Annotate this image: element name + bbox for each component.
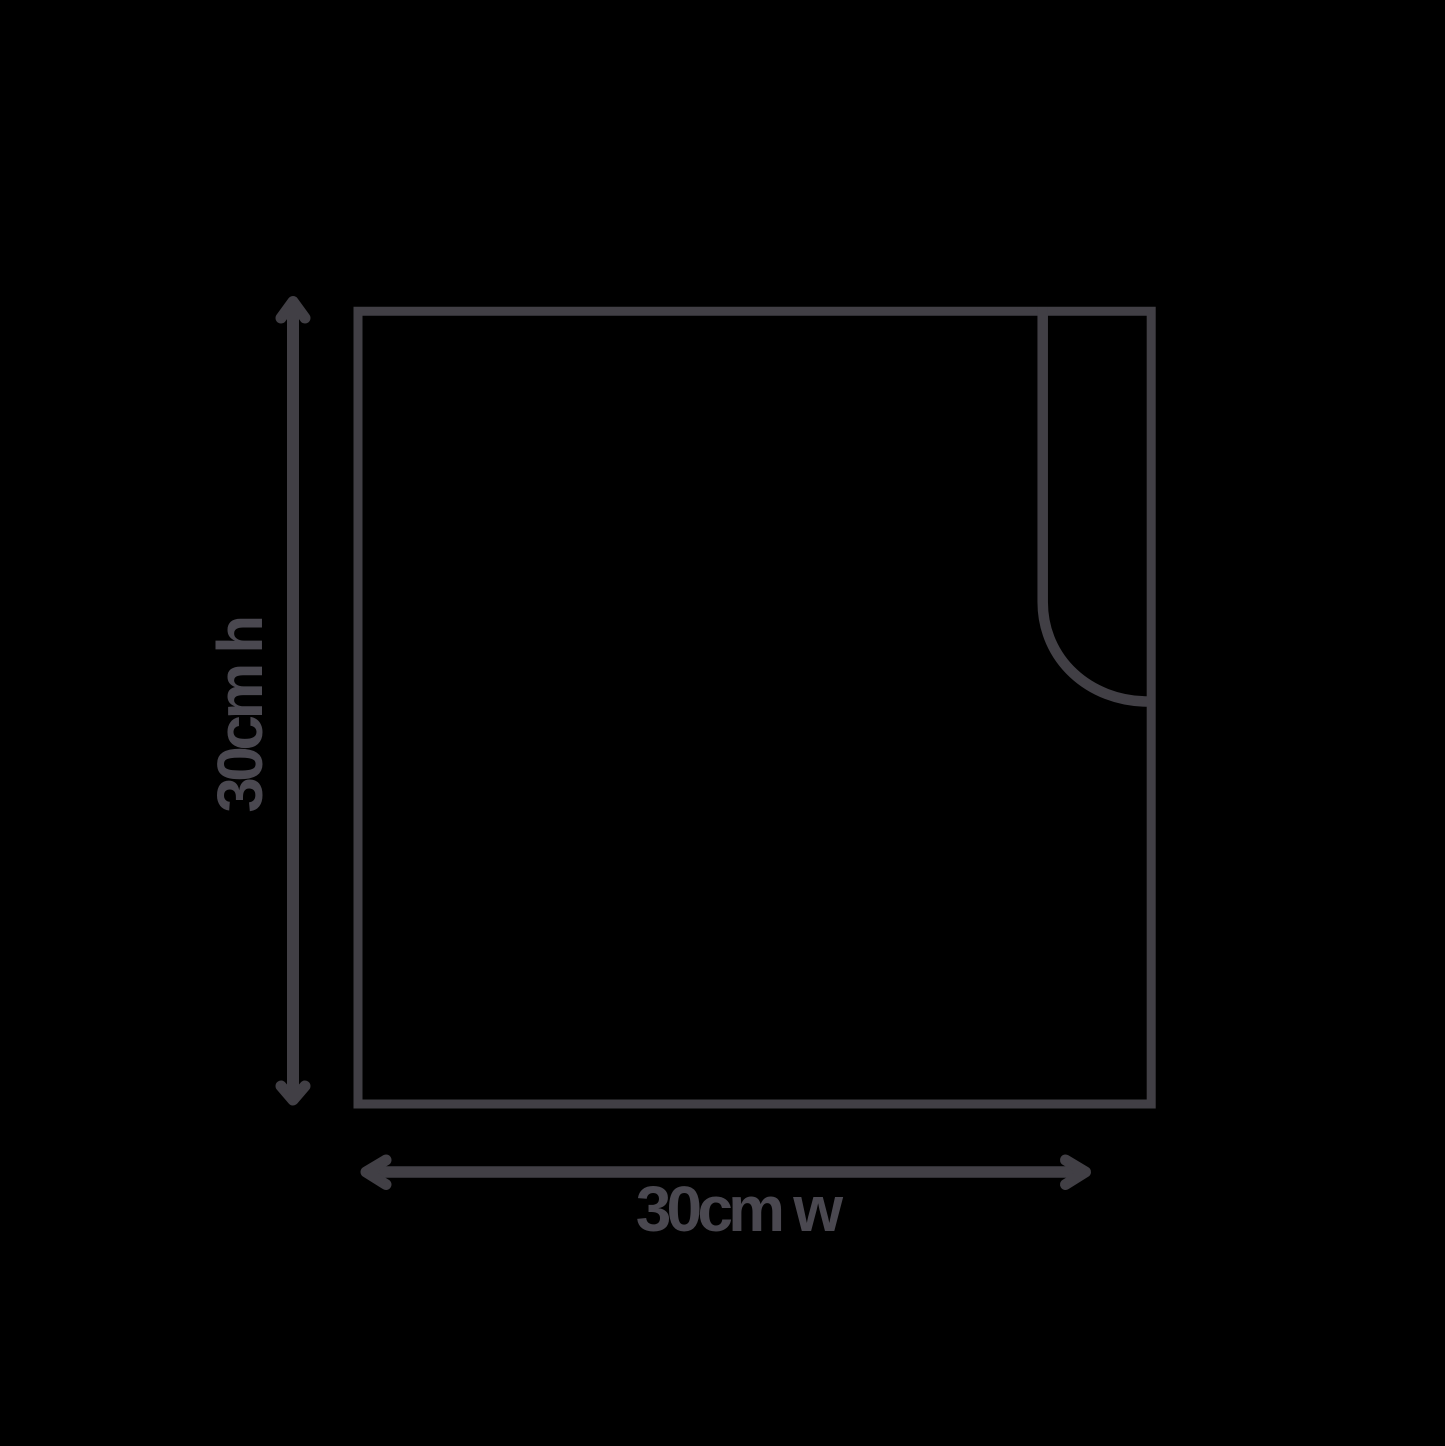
svg-text:30cm h: 30cm h: [204, 618, 276, 813]
svg-text:30cm w: 30cm w: [636, 1173, 843, 1245]
